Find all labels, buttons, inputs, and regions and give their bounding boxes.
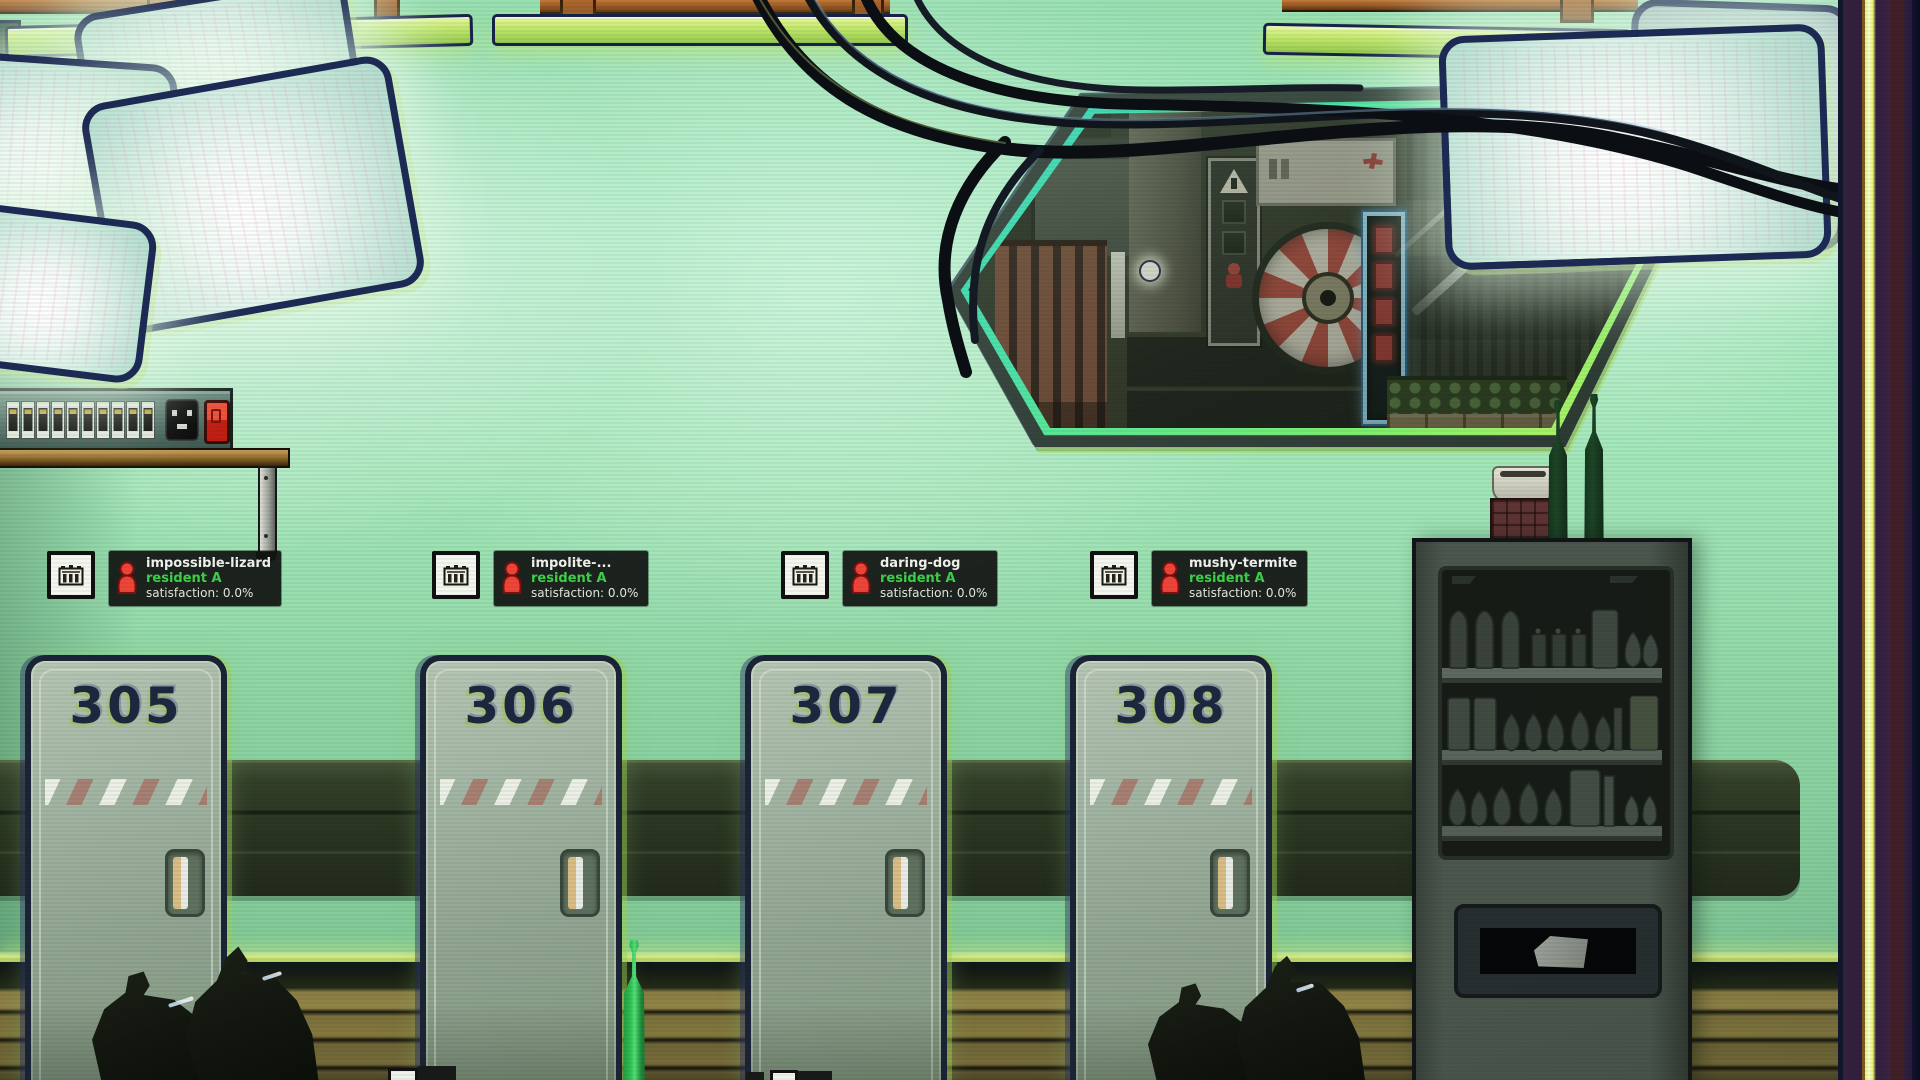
resident-tag-307: daring-dog resident A satisfaction: 0.0%: [781, 551, 997, 606]
door-number: 305: [31, 677, 221, 735]
room-icon: [443, 564, 469, 586]
light-bar: [492, 14, 908, 46]
partial-label: [770, 1070, 798, 1080]
hazard-stripes: [1090, 779, 1252, 805]
hazard-stripes: [440, 779, 602, 805]
resident-icon: [115, 561, 139, 595]
resident-icon: [500, 561, 524, 595]
resident-name: impolite-...: [531, 556, 638, 571]
wall-edge-trim: [1838, 0, 1920, 1080]
resident-tag-305: impossible-lizard resident A satisfactio…: [47, 551, 281, 606]
room-icon-button[interactable]: [432, 551, 480, 599]
door-number: 306: [426, 677, 616, 735]
resident-name: mushy-termite: [1189, 556, 1297, 571]
room-icon: [58, 564, 84, 586]
resident-icon: [849, 561, 873, 595]
network-power-strip: [0, 388, 233, 454]
resident-tag-306: impolite-... resident A satisfaction: 0.…: [432, 551, 648, 606]
room-icon-button[interactable]: [1090, 551, 1138, 599]
resident-icon: [1158, 561, 1182, 595]
resident-role: resident A: [146, 571, 271, 586]
resident-satisfaction: satisfaction: 0.0%: [146, 586, 271, 600]
ceiling-lamp: [1438, 23, 1832, 270]
resident-satisfaction: satisfaction: 0.0%: [880, 586, 987, 600]
partial-label: [746, 1072, 764, 1080]
partial-label: [798, 1071, 832, 1080]
room-icon-button[interactable]: [47, 551, 95, 599]
dispense-slot: [1454, 904, 1662, 998]
door-306[interactable]: 306: [420, 655, 622, 1080]
partial-label: [388, 1068, 418, 1080]
room-icon: [792, 564, 818, 586]
vending-glass: [1438, 566, 1674, 860]
resident-name: impossible-lizard: [146, 556, 271, 571]
door-handle: [1210, 849, 1250, 917]
shelf-bracket: [258, 466, 277, 556]
pipe-joint: [1560, 0, 1594, 23]
resident-satisfaction: satisfaction: 0.0%: [531, 586, 638, 600]
resident-info-panel: impossible-lizard resident A satisfactio…: [109, 551, 281, 606]
resident-name: daring-dog: [880, 556, 987, 571]
ceiling-lamp: [0, 201, 159, 386]
resident-info-panel: impolite-... resident A satisfaction: 0.…: [494, 551, 648, 606]
resident-role: resident A: [531, 571, 638, 586]
door-307[interactable]: 307: [745, 655, 947, 1080]
resident-tag-308: mushy-termite resident A satisfaction: 0…: [1090, 551, 1307, 606]
door-number: 307: [751, 677, 941, 735]
door-handle: [165, 849, 205, 917]
wooden-shelf: [0, 448, 290, 468]
power-inlet-icon: [164, 398, 200, 442]
partial-label: [418, 1066, 456, 1080]
hazard-stripes: [45, 779, 207, 805]
vending-machine[interactable]: [1412, 538, 1692, 1080]
game-viewport: impossible-lizard resident A satisfactio…: [0, 0, 1920, 1080]
door-handle: [560, 849, 600, 917]
resident-info-panel: mushy-termite resident A satisfaction: 0…: [1152, 551, 1307, 606]
room-icon: [1101, 564, 1127, 586]
room-icon-button[interactable]: [781, 551, 829, 599]
resident-info-panel: daring-dog resident A satisfaction: 0.0%: [843, 551, 997, 606]
ethernet-ports: [6, 401, 156, 439]
power-switch: [204, 400, 230, 444]
resident-role: resident A: [880, 571, 987, 586]
vending-shelves: [1442, 570, 1662, 848]
door-handle: [885, 849, 925, 917]
resident-satisfaction: satisfaction: 0.0%: [1189, 586, 1297, 600]
resident-role: resident A: [1189, 571, 1297, 586]
door-number: 308: [1076, 677, 1266, 735]
hazard-stripes: [765, 779, 927, 805]
